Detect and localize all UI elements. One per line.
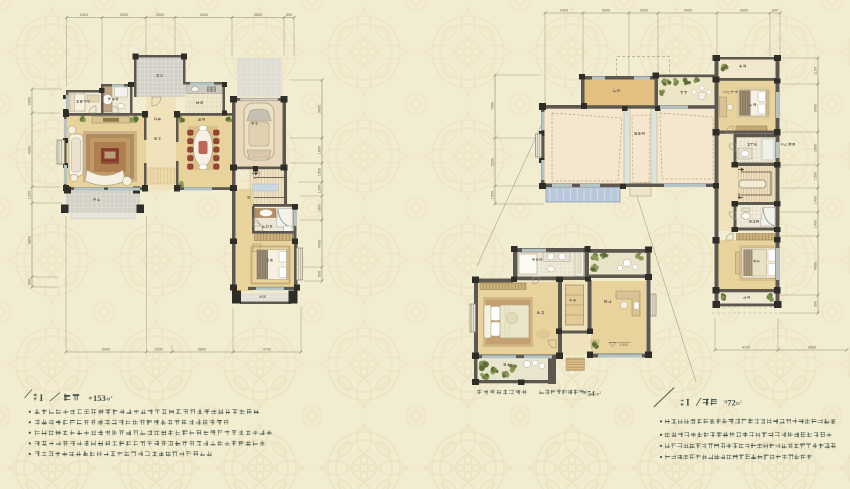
svg-text:4000: 4000 [814, 262, 818, 270]
svg-text:2000: 2000 [156, 13, 164, 17]
svg-text:3400: 3400 [814, 104, 818, 112]
svg-text:4700: 4700 [263, 348, 271, 352]
svg-text:2400: 2400 [560, 9, 568, 13]
svg-text:3800: 3800 [28, 236, 32, 244]
svg-text:4200: 4200 [28, 146, 32, 154]
svg-text:500: 500 [814, 301, 818, 307]
svg-text:PVC: PVC [724, 91, 732, 95]
svg-text:4000: 4000 [318, 240, 322, 248]
svg-text:2400: 2400 [80, 13, 88, 17]
svg-text:1200: 1200 [318, 185, 322, 193]
svg-text:3600: 3600 [808, 346, 816, 350]
svg-text:3400: 3400 [200, 13, 208, 17]
svg-text:3600: 3600 [254, 13, 262, 17]
svg-text:1400: 1400 [814, 196, 818, 204]
svg-text:54: 54 [588, 390, 596, 398]
svg-text:7000: 7000 [491, 102, 495, 110]
svg-text:72: 72 [727, 398, 736, 408]
svg-text:3600: 3600 [740, 9, 748, 13]
svg-text:1800: 1800 [814, 144, 818, 152]
svg-text:1800: 1800 [318, 146, 322, 154]
svg-text:500: 500 [28, 279, 32, 285]
svg-text:1150: 1150 [814, 67, 818, 75]
svg-text:3800: 3800 [198, 348, 206, 352]
svg-text:153: 153 [93, 393, 106, 403]
svg-text:5400: 5400 [102, 348, 110, 352]
svg-text:1400: 1400 [814, 220, 818, 228]
svg-text:3900: 3900 [318, 105, 322, 113]
svg-text:1200: 1200 [28, 191, 32, 199]
svg-text:3.600: 3.600 [619, 343, 628, 347]
svg-text:1500: 1500 [814, 172, 818, 180]
svg-text:3000: 3000 [602, 9, 610, 13]
svg-text:2000: 2000 [640, 9, 648, 13]
svg-text:2000: 2000 [155, 348, 163, 352]
svg-text:I: I [40, 394, 44, 404]
svg-text:5200: 5200 [491, 158, 495, 166]
svg-text:3000: 3000 [120, 13, 128, 17]
svg-text:4700: 4700 [742, 346, 750, 350]
svg-text:600: 600 [772, 9, 778, 13]
svg-text:3400: 3400 [684, 9, 692, 13]
svg-text:1500: 1500 [318, 168, 322, 176]
svg-text:I: I [686, 399, 690, 409]
svg-text:500: 500 [318, 271, 322, 277]
svg-text:2000: 2000 [28, 97, 32, 105]
svg-text:1500: 1500 [491, 191, 495, 199]
svg-text:1800: 1800 [318, 204, 322, 212]
svg-text:PVC: PVC [781, 143, 789, 147]
svg-text:600: 600 [286, 13, 292, 17]
